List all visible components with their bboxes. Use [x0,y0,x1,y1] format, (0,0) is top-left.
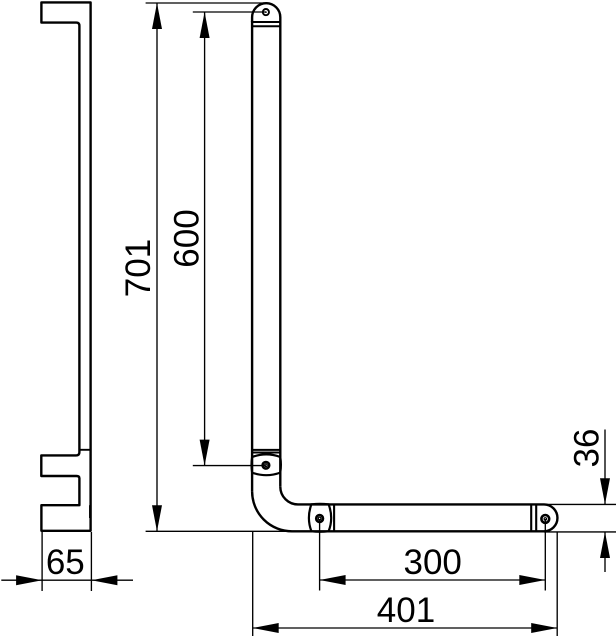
svg-text:300: 300 [403,543,461,582]
svg-text:36: 36 [567,429,606,468]
svg-text:600: 600 [167,209,206,267]
svg-text:401: 401 [377,591,435,630]
svg-text:65: 65 [46,543,85,582]
svg-text:701: 701 [119,239,158,297]
